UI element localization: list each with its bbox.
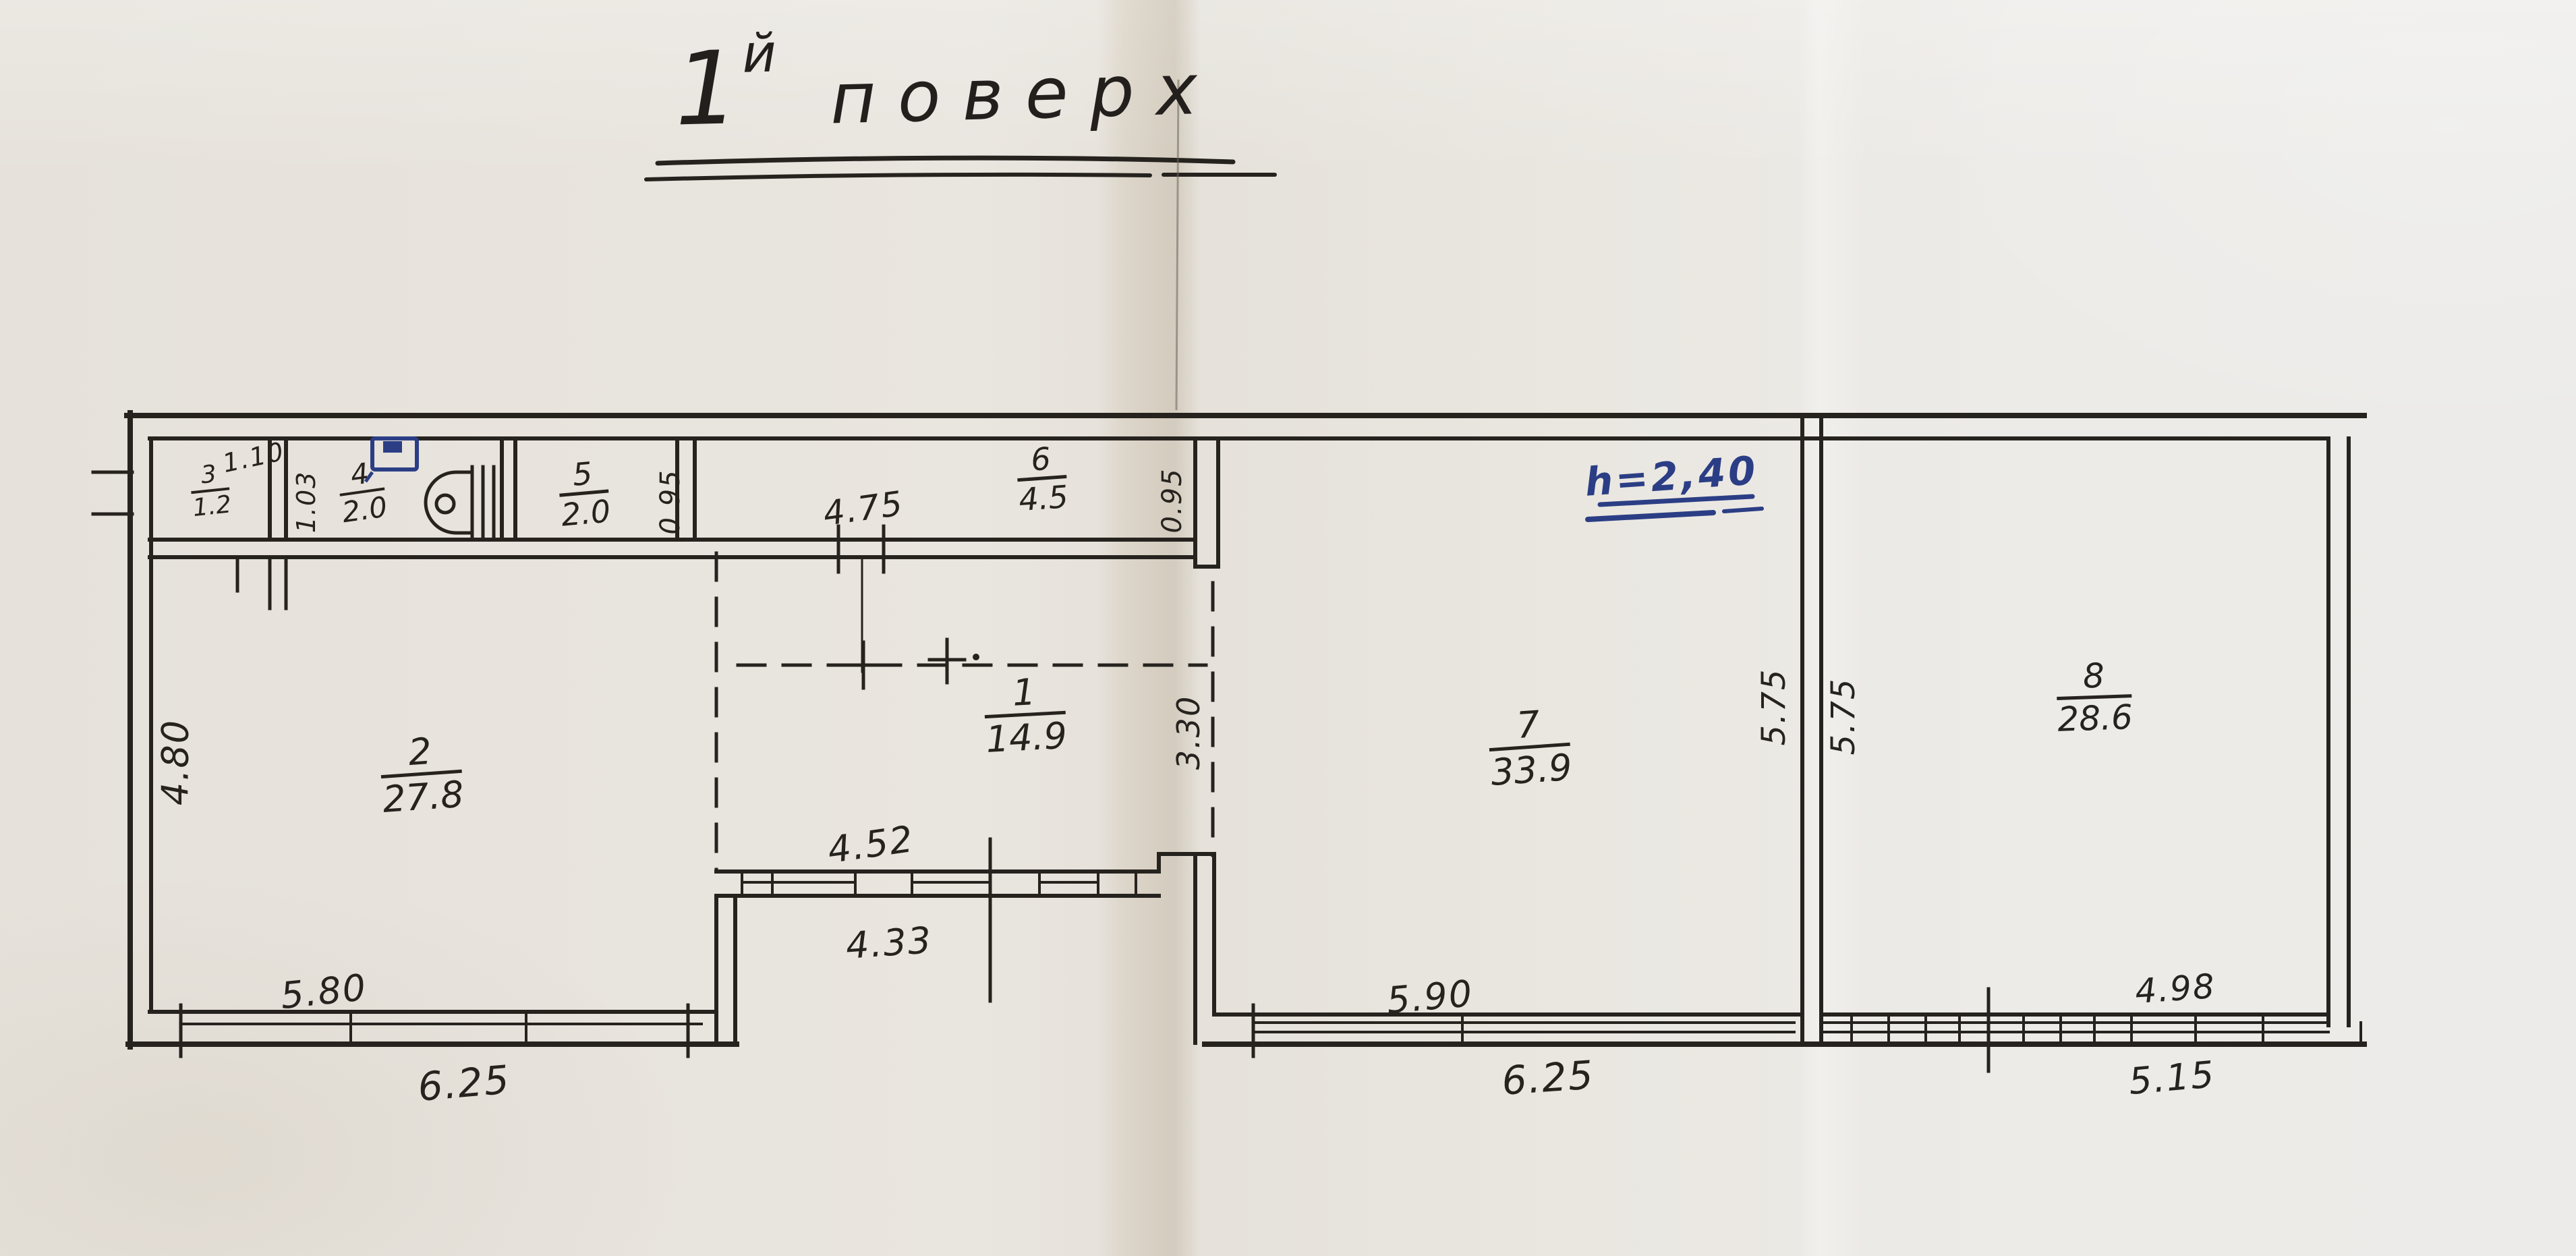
- room-area: 2.0: [340, 490, 389, 527]
- toilet-icon: [426, 467, 494, 538]
- title-suffix: й: [741, 28, 777, 81]
- title-word: поверх: [829, 53, 1220, 134]
- room-label-6: 6 4.5: [1015, 442, 1069, 516]
- room-number: 6: [1015, 442, 1067, 482]
- room-area: 4.5: [1018, 478, 1070, 516]
- room-number: 2: [378, 731, 462, 778]
- dim-wall78-right: 5.75: [1825, 678, 1862, 755]
- room-number: 7: [1487, 704, 1570, 751]
- title-number: 1: [673, 38, 740, 140]
- room-number: 8: [2055, 658, 2131, 700]
- dim-room5-depth: 0.95: [655, 469, 686, 534]
- dim-opening-width: 3.30: [1170, 695, 1207, 770]
- window-bands: [181, 872, 2361, 1046]
- room-area: 2.0: [560, 492, 612, 531]
- room-area: 14.9: [985, 714, 1068, 758]
- room-area: 28.6: [2057, 697, 2133, 737]
- dim-room8-bottom-outer: 5.15: [2127, 1053, 2216, 1103]
- dim-room7-bottom-inner: 5.90: [1385, 972, 1475, 1022]
- dim-room6-depth: 0.95: [1157, 467, 1188, 533]
- dim-room2-depth: 4.80: [154, 719, 197, 805]
- room-area: 27.8: [381, 773, 465, 818]
- dim-hall-depth: 1.03: [291, 471, 321, 534]
- page-title: 1 й поверх: [673, 25, 1220, 140]
- title-underline: [646, 158, 1275, 179]
- inner-walls: [150, 416, 2349, 1043]
- dim-room8-bottom-inner: 4.98: [2134, 967, 2216, 1011]
- room-label-4: 4 2.0: [335, 457, 389, 527]
- room-area: 33.9: [1489, 746, 1573, 791]
- room-area: 1.2: [192, 490, 233, 521]
- dim-room1-window-outer: 4.33: [845, 919, 934, 967]
- room-number: 5: [556, 457, 609, 497]
- dim-room2-bottom-outer: 6.25: [416, 1056, 513, 1110]
- room-label-2: 2 27.8: [378, 731, 465, 818]
- dim-room7-bottom-outer: 6.25: [1500, 1052, 1596, 1104]
- dim-wall78-left: 5.75: [1755, 668, 1793, 746]
- room-label-8: 8 28.6: [2055, 658, 2133, 737]
- room-label-1: 1 14.9: [983, 672, 1068, 758]
- centerline-crosses: [845, 639, 979, 688]
- outer-walls: [127, 413, 2364, 1047]
- dim-room2-bottom-inner: 5.80: [279, 966, 369, 1017]
- floor-plan-sheet: 1 й поверх 1 14.9 2 27.8 3 1.2 4 2.0 5 2…: [0, 0, 2576, 1256]
- room-label-7: 7 33.9: [1487, 704, 1573, 791]
- room-label-5: 5 2.0: [556, 457, 612, 532]
- room-number: 1: [983, 672, 1066, 718]
- dimension-ticks: [93, 472, 1988, 1071]
- dashed-openings: [716, 553, 1213, 870]
